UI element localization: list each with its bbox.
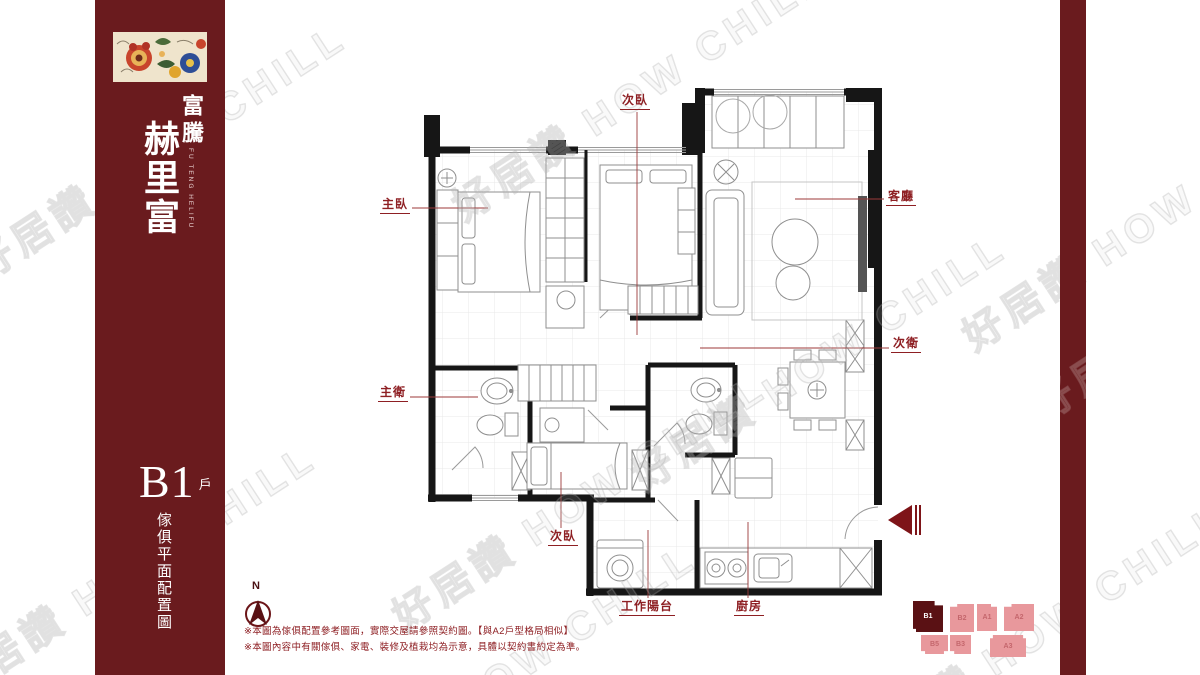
keyplan-unit-b3: B3 bbox=[950, 635, 971, 654]
room-label-bathroom2: 次衛 bbox=[891, 337, 921, 353]
keyplan-unit-a3: A3 bbox=[990, 635, 1026, 657]
bedroom3-bed bbox=[527, 443, 627, 489]
unit-code: B1戶 bbox=[139, 455, 212, 508]
room-label-work-balcony: 工作陽台 bbox=[619, 600, 675, 616]
brand-name-en: FU TENG HELIFU bbox=[187, 148, 194, 229]
room-label-living-room: 客廳 bbox=[886, 190, 916, 206]
keyplan-unit-b5: B5 bbox=[921, 635, 948, 654]
compass-icon bbox=[246, 600, 270, 626]
room-label-kitchen: 廚房 bbox=[734, 600, 764, 616]
room-label-master-bedroom: 主臥 bbox=[380, 198, 410, 214]
right-accent-stripe bbox=[1060, 0, 1086, 675]
keyplan-unit-a1: A1 bbox=[977, 604, 997, 631]
room-label-bedroom3: 次臥 bbox=[548, 530, 578, 546]
keyplan-unit-a2: A2 bbox=[1004, 604, 1034, 631]
folk-art-banner bbox=[113, 32, 207, 82]
entrance-arrow bbox=[888, 505, 920, 535]
footnote-line: ※本圖為傢俱配置參考圖面，實際交屋請參照契約圖。【與A2戶型格局相似】 bbox=[244, 624, 585, 640]
room-label-master-bathroom: 主衛 bbox=[378, 386, 408, 402]
bedroom2-bed bbox=[600, 165, 698, 314]
brand-name-large: 赫里富 bbox=[133, 120, 185, 237]
unit-code-suffix: 戶 bbox=[199, 477, 212, 492]
unit-code-main: B1 bbox=[139, 456, 195, 507]
drawing-title: 傢俱平面配置圖 bbox=[153, 512, 174, 631]
keyplan-unit-b1: B1 bbox=[913, 601, 943, 632]
keyplan-unit-b2: B2 bbox=[950, 604, 974, 632]
room-label-bedroom2: 次臥 bbox=[620, 94, 650, 110]
brand-sidebar: 富騰 赫里富 FU TENG HELIFU B1戶 傢俱平面配置圖 bbox=[95, 0, 225, 675]
keyplan: B1 B2 A1 A2 B5 B3 A3 bbox=[903, 596, 1063, 666]
compass-north-label: N bbox=[252, 580, 260, 592]
flyer-page: 好居讚 HOW CHILL 好居讚 HOW CHILL 好居讚 HOW CHIL… bbox=[0, 0, 1200, 675]
washing-machine bbox=[597, 540, 643, 588]
footnotes: ※本圖為傢俱配置參考圖面，實際交屋請參照契約圖。【與A2戶型格局相似】 ※本圖內… bbox=[244, 624, 585, 655]
footnote-line: ※本圖內容中有關傢俱、家電、裝修及植栽均為示意，具體以契約書約定為準。 bbox=[244, 640, 585, 656]
